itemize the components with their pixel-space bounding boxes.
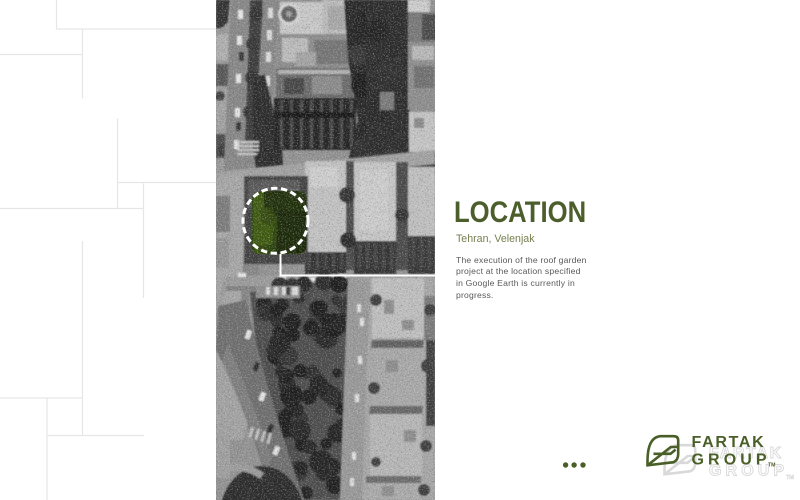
svg-text:GROUP: GROUP <box>692 452 771 469</box>
svg-text:TM: TM <box>768 463 776 469</box>
svg-text:TM: TM <box>786 475 794 481</box>
svg-text:FARTAK: FARTAK <box>692 434 766 451</box>
